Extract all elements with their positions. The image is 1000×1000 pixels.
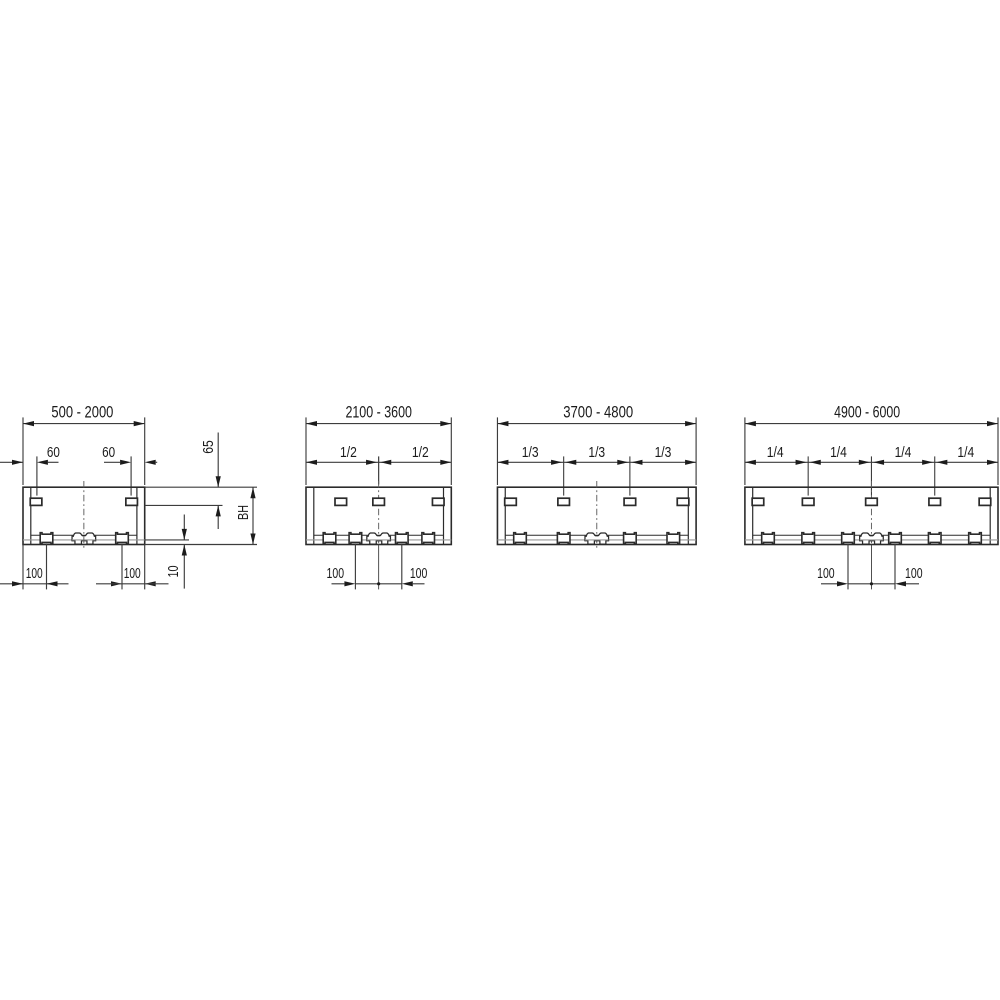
svg-text:500 - 2000: 500 - 2000 — [51, 404, 113, 422]
svg-text:100: 100 — [817, 565, 835, 582]
svg-text:100: 100 — [26, 565, 43, 582]
svg-text:2100 - 3600: 2100 - 3600 — [345, 404, 412, 422]
svg-text:1/2: 1/2 — [340, 444, 357, 461]
svg-text:1/4: 1/4 — [957, 444, 974, 461]
svg-text:10: 10 — [165, 566, 182, 578]
svg-text:60: 60 — [47, 444, 60, 461]
svg-text:1/4: 1/4 — [767, 444, 784, 461]
svg-text:100: 100 — [124, 565, 141, 582]
svg-text:60: 60 — [102, 444, 115, 461]
svg-text:1/4: 1/4 — [830, 444, 847, 461]
svg-text:100: 100 — [410, 565, 428, 582]
svg-text:1/2: 1/2 — [412, 444, 429, 461]
svg-text:1/3: 1/3 — [655, 444, 672, 461]
svg-text:65: 65 — [200, 440, 217, 454]
svg-text:100: 100 — [905, 565, 923, 582]
svg-text:1/4: 1/4 — [895, 444, 912, 461]
svg-text:3700 - 4800: 3700 - 4800 — [563, 404, 633, 422]
svg-text:4900 - 6000: 4900 - 6000 — [834, 404, 900, 422]
svg-text:100: 100 — [327, 565, 345, 582]
svg-text:1/3: 1/3 — [522, 444, 539, 461]
svg-text:1/3: 1/3 — [588, 444, 605, 461]
svg-text:BH: BH — [235, 505, 252, 520]
